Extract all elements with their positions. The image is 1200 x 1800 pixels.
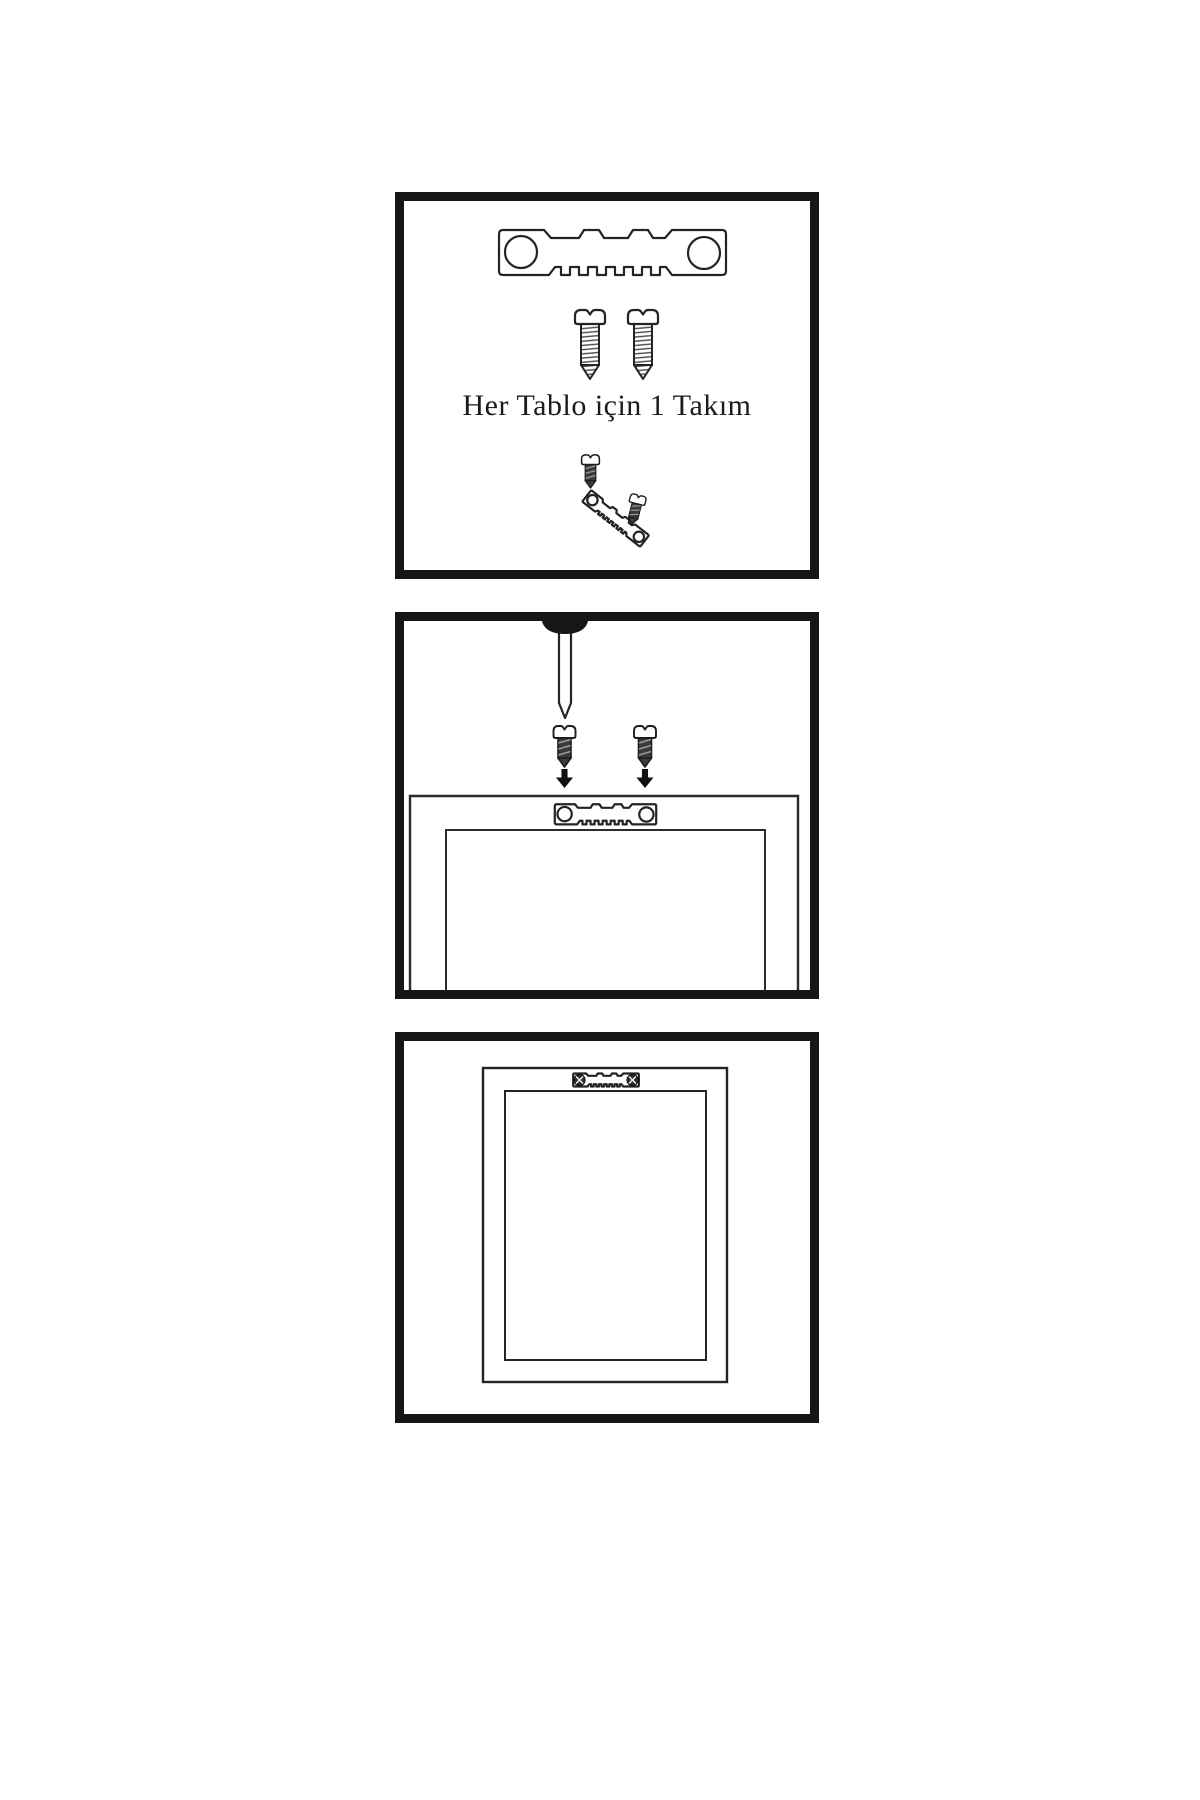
nail-alignment-illustration	[404, 621, 810, 990]
screw-into-hanger-icon	[582, 455, 649, 547]
screw-head-icon	[627, 1074, 638, 1085]
sawtooth-hanger-icon	[499, 230, 726, 275]
wall-nail-icon	[542, 621, 588, 718]
kit-caption: Her Tablo için 1 Takım	[404, 389, 810, 423]
instruction-sheet: Her Tablo için 1 Takım	[0, 0, 1200, 1800]
dark-screw-icon	[554, 726, 576, 767]
arrow-down-icon	[556, 769, 573, 788]
dark-screw-icon	[634, 726, 656, 767]
screw-icon	[575, 310, 605, 379]
panel-frame-hung	[395, 1032, 819, 1423]
picture-frame-back-icon	[483, 1068, 727, 1382]
picture-frame-back-icon	[410, 796, 798, 990]
panel-nail-alignment	[395, 612, 819, 999]
frame-hung-illustration	[404, 1041, 810, 1414]
screw-head-icon	[574, 1074, 585, 1085]
brand-logo: ENK WALL ART	[0, 1470, 1200, 1690]
sawtooth-hanger-icon	[555, 804, 656, 824]
panel-hardware-kit: Her Tablo için 1 Takım	[395, 192, 819, 579]
hardware-kit-illustration	[404, 201, 810, 570]
screw-icon	[628, 310, 658, 379]
arrow-down-icon	[636, 769, 653, 788]
